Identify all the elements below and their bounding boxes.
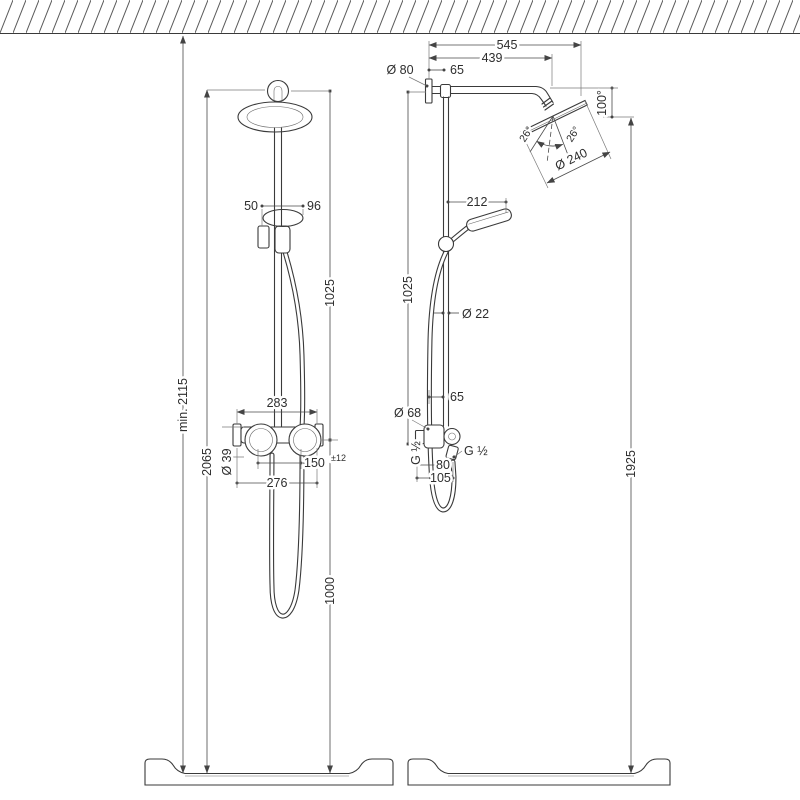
technical-drawing: min. 2115 2065 1025 1000 50 96 283 Ø 39 …	[0, 0, 800, 800]
dim-439: 439	[482, 51, 503, 65]
dim-100: 100°	[595, 90, 609, 116]
dim-50: 50	[244, 199, 258, 213]
dim-96: 96	[307, 199, 321, 213]
dim-283: 283	[267, 396, 288, 410]
dim-bar-diameter: Ø 22	[462, 307, 489, 321]
dim-tolerance: ±12	[331, 453, 346, 463]
front-pipe-arc	[268, 81, 289, 102]
dim-flange-diameter: Ø 80	[386, 63, 413, 77]
side-holder-knob	[439, 237, 454, 252]
dim-150: 150	[304, 456, 325, 470]
front-thermostat-valve	[233, 424, 323, 456]
shower-tray-left	[145, 759, 393, 785]
drawing-canvas: min. 2115 2065 1025 1000 50 96 283 Ø 39 …	[0, 0, 800, 800]
front-view-shower	[233, 81, 323, 617]
dim-1000: 1000	[323, 577, 337, 605]
side-wall-flange	[426, 79, 433, 103]
side-view-shower	[416, 79, 588, 510]
dim-545: 545	[497, 38, 518, 52]
dim-65-top: 65	[450, 63, 464, 77]
dim-bracket-diameter: Ø 68	[394, 406, 421, 420]
dim-hose-thread: G ½	[464, 444, 488, 458]
dim-knob-diameter: Ø 39	[220, 448, 234, 475]
dim-105: 105	[430, 471, 451, 485]
dim-212: 212	[467, 195, 488, 209]
ceiling-hatch	[0, 0, 800, 34]
side-handshower-head	[465, 208, 512, 233]
dim-min-height: min. 2115	[176, 378, 190, 432]
dim-front-1025: 1025	[323, 279, 337, 307]
front-handshower	[263, 210, 303, 227]
dim-80: 80	[436, 458, 450, 472]
dim-1925: 1925	[624, 450, 638, 478]
dim-head-diameter: Ø 240	[553, 146, 590, 174]
side-dimensions: 545 439 Ø 80 65 100° 26° 26° Ø 240 212 1…	[386, 38, 638, 773]
front-dimensions: min. 2115 2065 1025 1000 50 96 283 Ø 39 …	[176, 36, 346, 773]
dim-side-1025: 1025	[401, 276, 415, 304]
front-holder	[258, 226, 269, 248]
dim-supply-thread: G ½	[409, 441, 423, 465]
dim-2065: 2065	[200, 448, 214, 476]
dim-65-lower: 65	[450, 390, 464, 404]
dim-276: 276	[267, 476, 288, 490]
dim-tilt-right: 26°	[564, 124, 583, 144]
